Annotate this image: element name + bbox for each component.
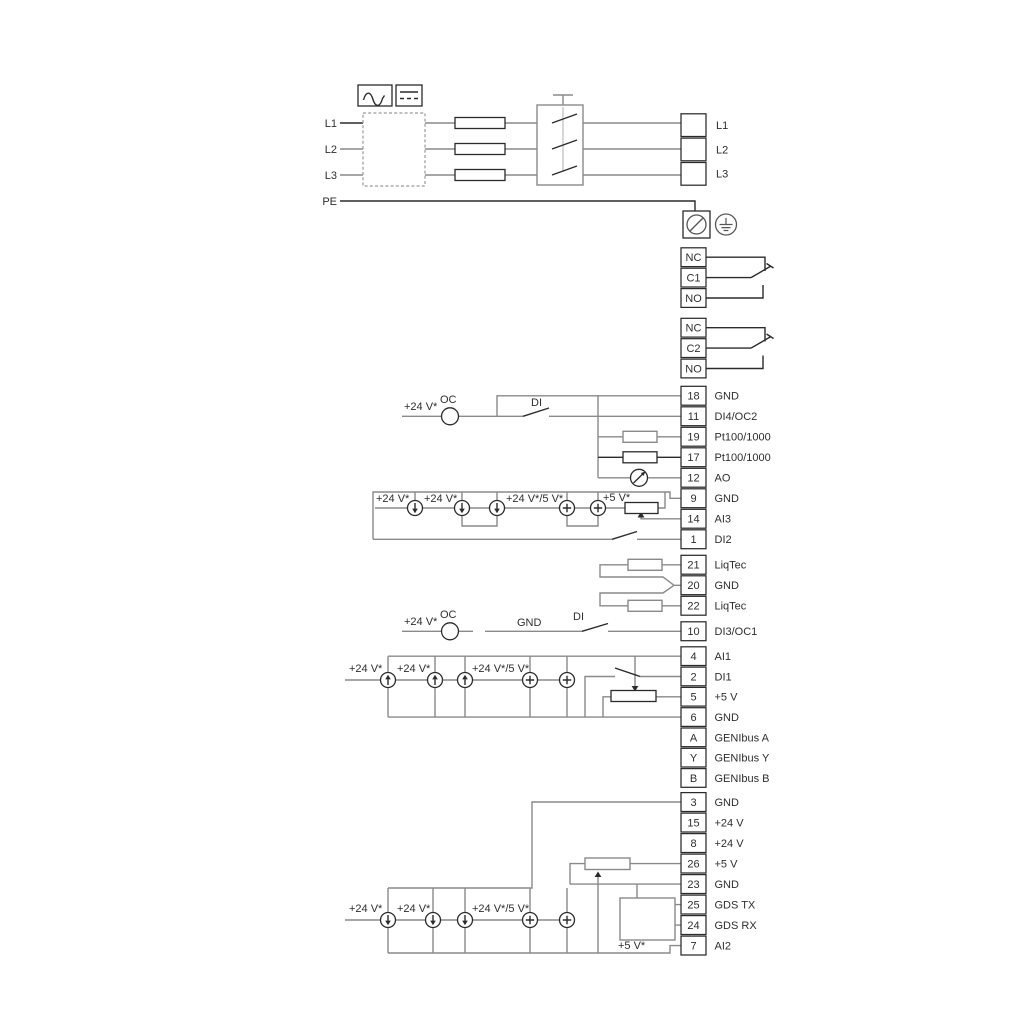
disconnect-switch-box: [537, 105, 583, 185]
terminal-label: GND: [715, 493, 740, 505]
terminal-number: 20: [687, 580, 699, 592]
pt100-resistor-1: [623, 431, 657, 442]
current-source-icon: [381, 673, 396, 688]
terminal-label: GND: [715, 797, 740, 809]
wiring-diagram-page: L1 L2 L3 PE: [0, 0, 1024, 1024]
v24-label: +24 V*: [404, 401, 438, 413]
terminal-label: AI2: [715, 940, 732, 952]
terminal-number: 6: [690, 712, 696, 724]
oc-label: OC: [440, 394, 457, 406]
terminal-label: Pt100/1000: [715, 432, 771, 444]
input-line-label-l2: L2: [325, 144, 337, 156]
terminal-label: L2: [716, 144, 728, 156]
gds-sensor-box: [620, 898, 675, 940]
di3-switch-blade: [582, 624, 608, 632]
terminal-number: 25: [687, 899, 699, 911]
terminal-number: 3: [690, 797, 696, 809]
terminal-number: NC: [686, 323, 702, 335]
terminal-number: NO: [685, 363, 702, 375]
terminal-label: +5 V: [715, 692, 739, 704]
terminal-label: GND: [715, 391, 740, 403]
v24-5v-label: +24 V*/5 V*: [506, 493, 564, 505]
v24-5v-label: +24 V*/5 V*: [472, 903, 530, 915]
current-source-icon: [591, 501, 606, 516]
terminal-number: B: [690, 773, 697, 785]
terminal-number: C2: [686, 343, 700, 355]
terminal-number: 4: [690, 651, 696, 663]
terminal-label: +24 V: [715, 838, 745, 850]
wiring-diagram: L1 L2 L3 PE: [0, 0, 1024, 1024]
liqtec-sensor-2: [628, 600, 662, 611]
terminal-number: 23: [687, 879, 699, 891]
oc-output-icon: [442, 623, 459, 640]
terminal-label: +24 V: [715, 817, 745, 829]
terminal-number: 9: [690, 493, 696, 505]
terminal-number: 11: [688, 411, 699, 423]
io-group-bottom: 3GND15+24 V8+24 V26+5 V23GND25GDS TX24GD…: [681, 793, 757, 955]
terminal-number: NC: [686, 252, 702, 264]
terminal-label: GND: [715, 580, 740, 592]
terminal-number: 17: [687, 452, 699, 464]
io-group-top: 18GND11DI4/OC219Pt100/100017Pt100/100012…: [681, 386, 771, 548]
fuse-l3: [455, 170, 505, 181]
io-group-mid: 4AI12DI15+5 V6GNDAGENIbus AYGENIbus YBGE…: [681, 647, 770, 788]
terminal-label: +5 V: [715, 858, 739, 870]
terminal-label: LiqTec: [715, 560, 747, 572]
terminal-number: 7: [690, 940, 696, 952]
input-line-label-l3: L3: [325, 170, 337, 182]
current-source-icon: [560, 501, 575, 516]
di3-terminal: 10DI3/OC1: [681, 622, 757, 641]
terminal-label: Pt100/1000: [715, 452, 771, 464]
terminal-label: GENIbus B: [715, 773, 770, 785]
current-source-icon: [458, 673, 473, 688]
v24-label: +24 V*: [404, 616, 438, 628]
dc-symbol-box: [396, 85, 422, 106]
fuse-l1: [455, 118, 505, 129]
current-source-icon: [458, 913, 473, 928]
terminal-number: 24: [687, 920, 699, 932]
potentiometer-ai3: [625, 503, 658, 514]
pt100-resistor-2: [623, 452, 657, 463]
terminal-label: DI3/OC1: [715, 626, 758, 638]
terminal-label: GENIbus A: [715, 732, 770, 744]
liqtec-sensor-1: [628, 559, 662, 570]
current-source-icon: [523, 913, 538, 928]
potentiometer-ai1: [611, 691, 656, 702]
v24-5v-label: +24 V*/5 V*: [472, 663, 530, 675]
current-source-icon: [455, 501, 470, 516]
potentiometer-ai2: [585, 858, 630, 870]
terminal-label: GDS TX: [715, 899, 756, 911]
terminal-label: L1: [716, 120, 728, 132]
terminal-number: 21: [687, 560, 699, 572]
terminal-number: Y: [690, 753, 698, 765]
io-group-top-wiring: +24 V* OC DI: [402, 394, 681, 486]
power-output-block: L1L2L3: [681, 114, 728, 185]
input-line-label-l1: L1: [325, 118, 337, 130]
current-source-icon: [490, 501, 505, 516]
terminal-number: 2: [690, 671, 696, 683]
wiper-arrow-up: [595, 872, 602, 878]
terminal-number: A: [690, 732, 698, 744]
di-label: DI: [531, 397, 542, 409]
terminal-label: DI1: [715, 671, 732, 683]
terminal-number: 8: [690, 838, 696, 850]
relay-contact-blades: [751, 264, 774, 349]
v24-label: +24 V*: [349, 663, 383, 675]
current-source-icon: [381, 913, 396, 928]
terminal-label: DI2: [715, 534, 732, 546]
oc-label: OC: [440, 609, 457, 621]
wire: [340, 123, 681, 175]
emc-filter-box: [363, 113, 425, 186]
terminal-number: NO: [685, 293, 702, 305]
terminal-cell: [681, 114, 706, 137]
ai1-row-wiring: +24 V* +24 V* +24 V*/5 V*: [345, 656, 681, 717]
terminal-label: LiqTec: [715, 601, 747, 613]
current-source-icon: [408, 501, 423, 516]
current-source-icon: [523, 673, 538, 688]
relay-2-block: NCC2NO: [681, 318, 706, 378]
v24-label: +24 V*: [424, 493, 458, 505]
v5-label: +5 V*: [603, 492, 631, 504]
terminal-number: 15: [687, 817, 699, 829]
terminal-label: AI3: [715, 514, 732, 526]
power-section: L1 L2 L3 PE: [322, 85, 736, 238]
v24-label: +24 V*: [349, 903, 383, 915]
pe-wire: [340, 201, 695, 211]
terminal-number: 19: [687, 432, 699, 444]
current-source-icon: [560, 673, 575, 688]
di2-switch-blade: [612, 532, 637, 540]
ai3-row-wiring: +24 V* +24 V* +24 V*/5 V* +5 V*: [373, 492, 681, 539]
terminal-number: 18: [687, 391, 699, 403]
terminal-number: 26: [687, 858, 699, 870]
terminal-label: GND: [715, 879, 740, 891]
terminal-number: 12: [687, 473, 699, 485]
terminal-label: AI1: [715, 651, 732, 663]
current-source-icon: [426, 913, 441, 928]
terminal-label: GDS RX: [715, 920, 758, 932]
v24-label: +24 V*: [397, 663, 431, 675]
source-circle: [442, 623, 459, 640]
v24-label: +24 V*: [397, 903, 431, 915]
terminal-blocks: L1L2L3NCC1NONCC2NO18GND11DI4/OC219Pt100/…: [681, 114, 771, 955]
di1-switch-blade: [615, 668, 640, 677]
ai2-row-wiring: +24 V* +24 V* +24 V*/5 V* +5 V*: [345, 802, 681, 953]
fuse-l2: [455, 144, 505, 155]
terminal-label: GND: [715, 712, 740, 724]
terminal-label: GENIbus Y: [715, 753, 770, 765]
switch-actuator: [553, 95, 573, 105]
v5-label: +5 V*: [618, 940, 646, 952]
terminal-label: AO: [715, 473, 731, 485]
terminal-label: DI4/OC2: [715, 411, 758, 423]
source-circle: [442, 408, 459, 425]
current-source-icon: [560, 913, 575, 928]
terminal-number: 14: [687, 514, 699, 526]
v24-label: +24 V*: [376, 493, 410, 505]
terminal-cell: [681, 138, 706, 161]
relay-1-block: NCC1NO: [681, 248, 706, 308]
relay-section: [706, 257, 774, 368]
oc-output-icon: [442, 408, 459, 425]
di4-switch-blade: [523, 408, 549, 416]
terminal-number: 10: [687, 626, 699, 638]
current-source-icon: [428, 673, 443, 688]
input-line-label-pe: PE: [322, 196, 337, 208]
liqtec-group: 21LiqTec20GND22LiqTec: [681, 555, 747, 615]
terminal-label: L3: [716, 169, 728, 181]
di-label: DI: [573, 611, 584, 623]
terminal-number: 1: [690, 534, 696, 546]
liqtec-wiring: [600, 559, 681, 611]
gnd-label: GND: [517, 617, 542, 629]
terminal-number: 22: [687, 601, 699, 613]
terminal-cell: [681, 163, 706, 186]
terminal-number: 5: [690, 692, 696, 704]
terminal-number: C1: [686, 273, 700, 285]
